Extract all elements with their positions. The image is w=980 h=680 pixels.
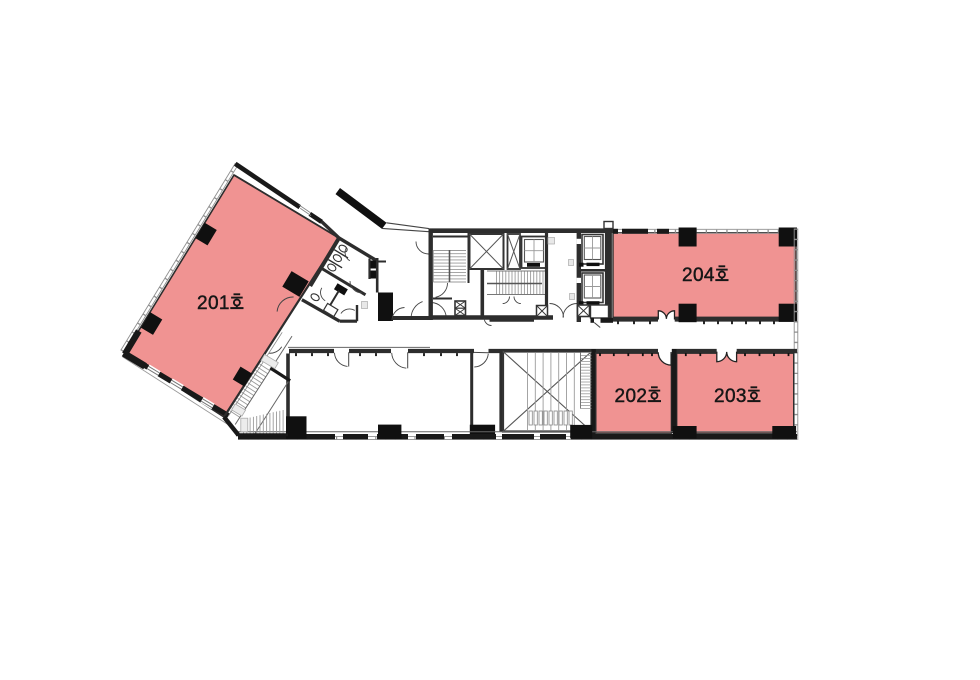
- svg-text:204: 204: [682, 265, 715, 286]
- svg-text:203: 203: [714, 386, 747, 407]
- svg-text:202: 202: [615, 386, 648, 407]
- svg-text:201: 201: [197, 293, 230, 314]
